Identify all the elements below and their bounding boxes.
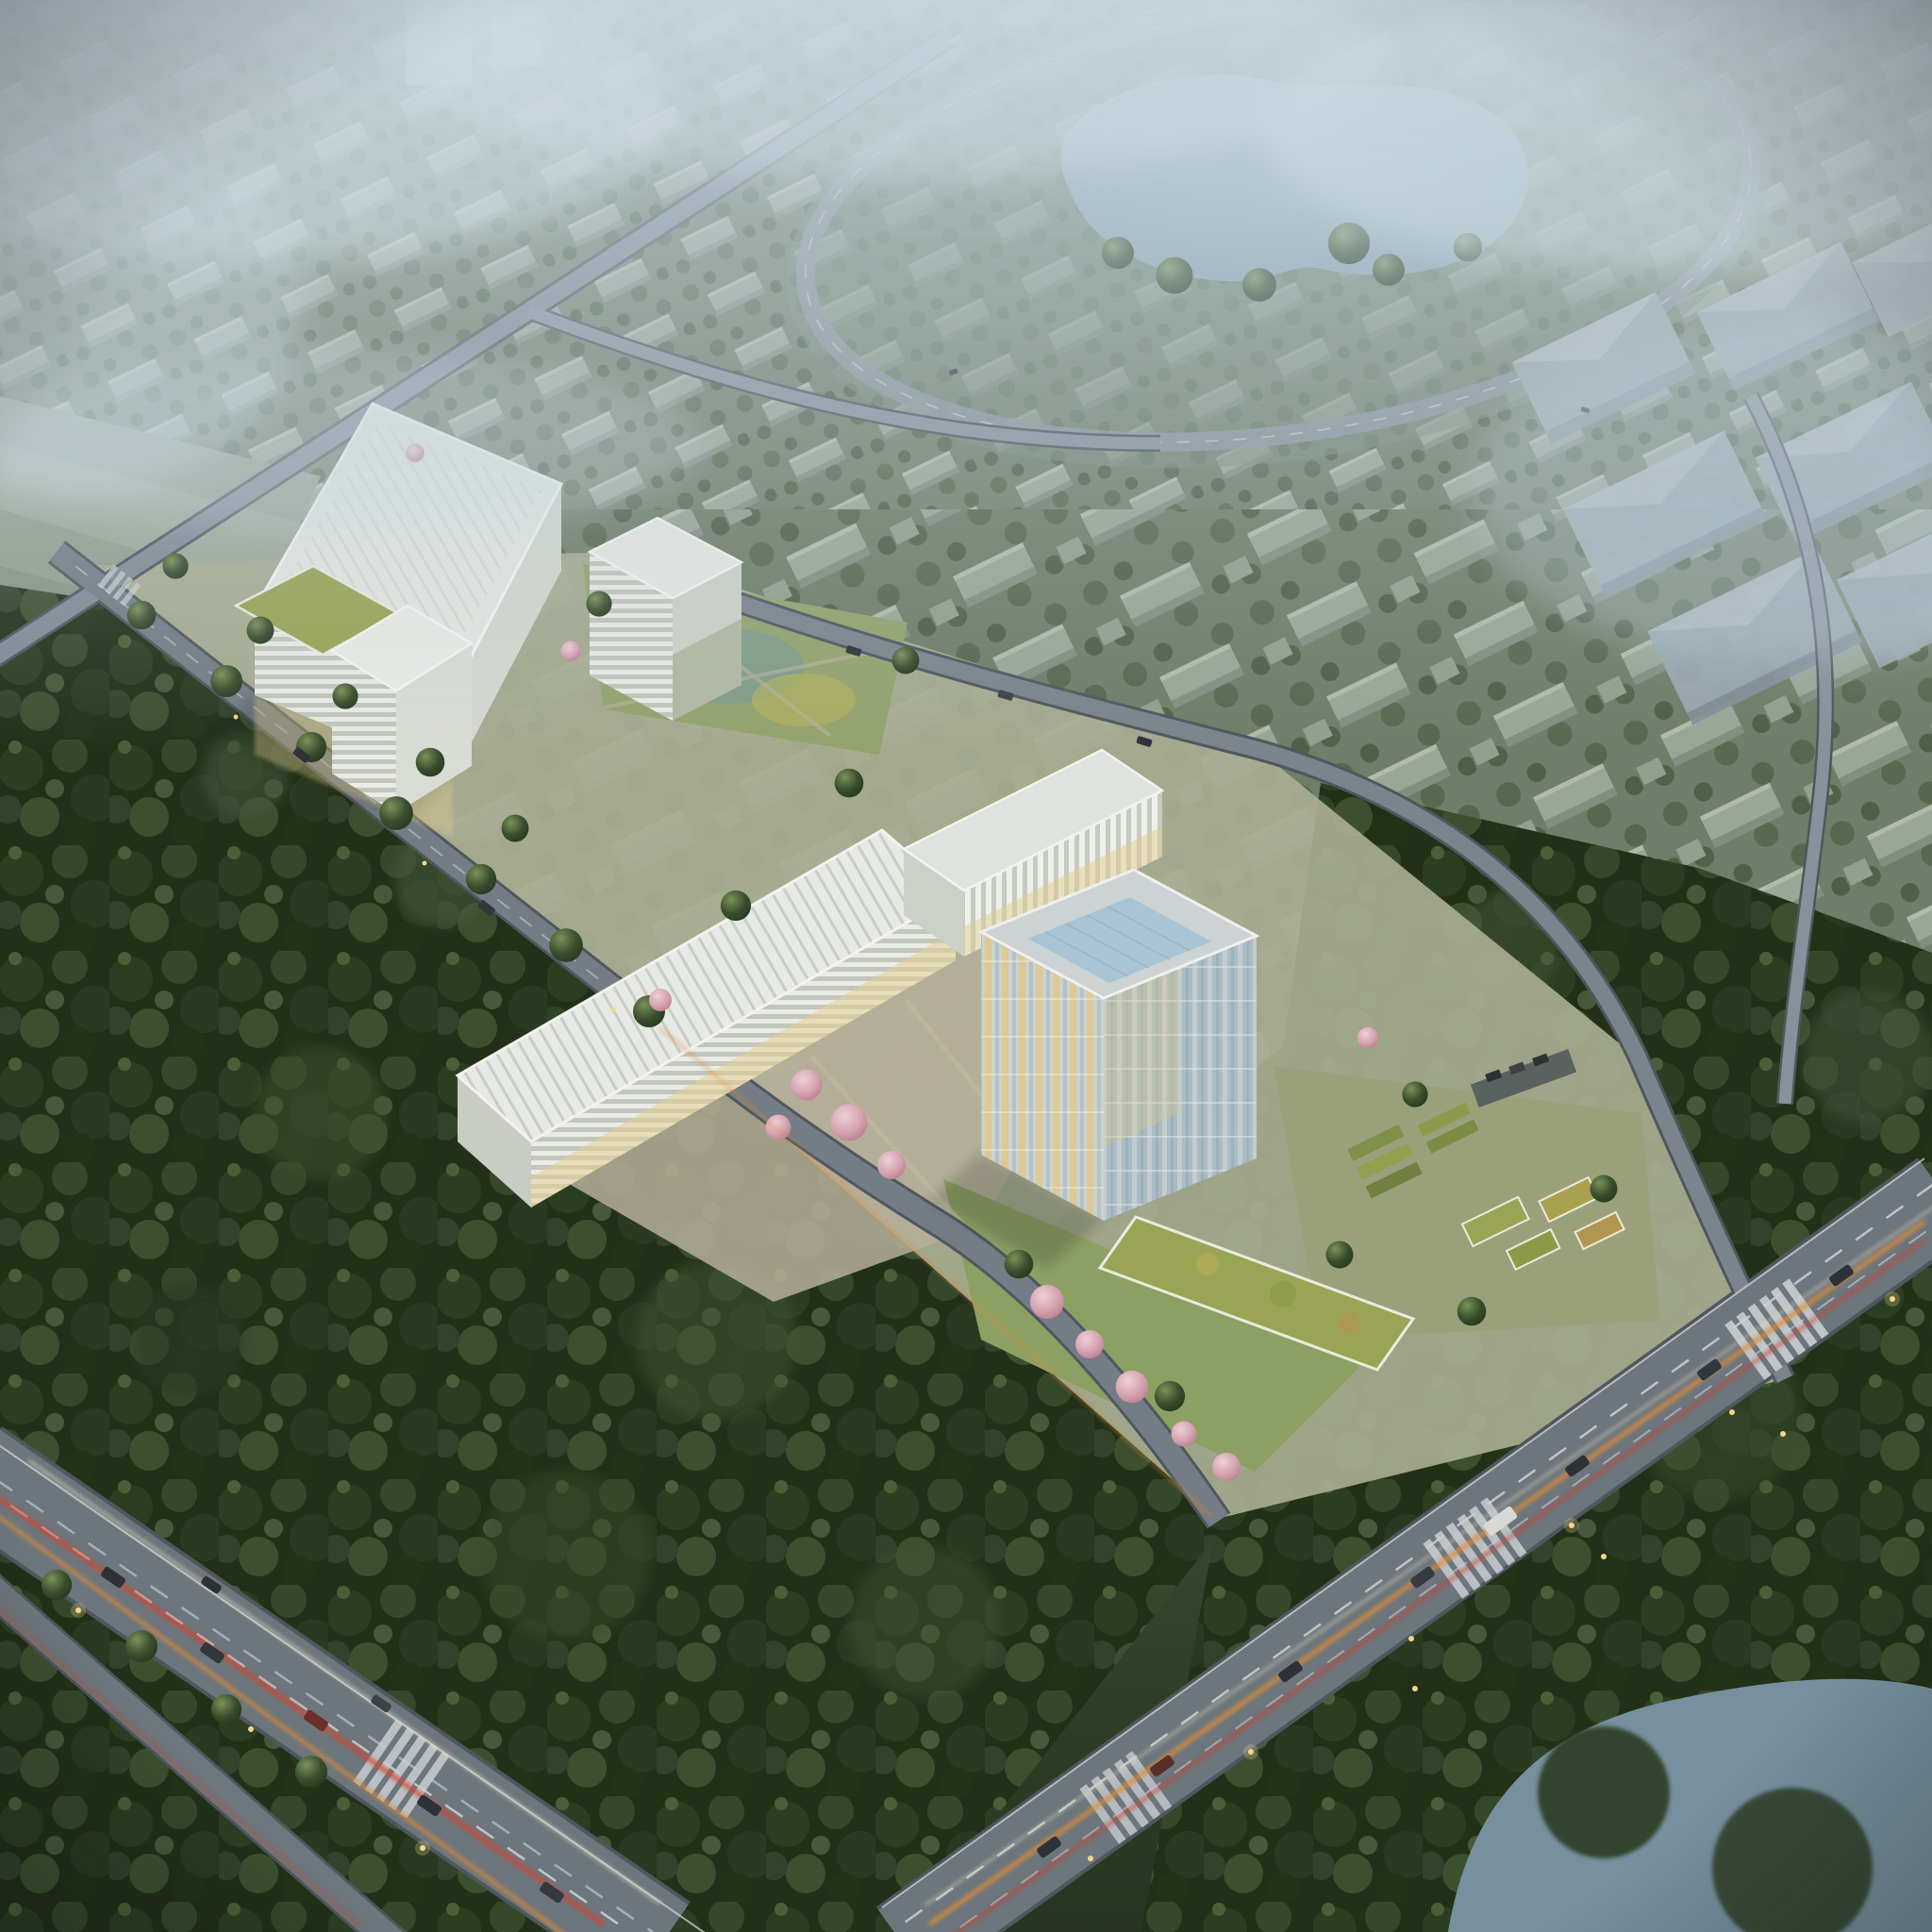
- atmosphere: [0, 0, 1932, 1932]
- aerial-campus-render: [0, 0, 1932, 1932]
- vignette: [0, 0, 1932, 1932]
- render-canvas: [0, 0, 1932, 1932]
